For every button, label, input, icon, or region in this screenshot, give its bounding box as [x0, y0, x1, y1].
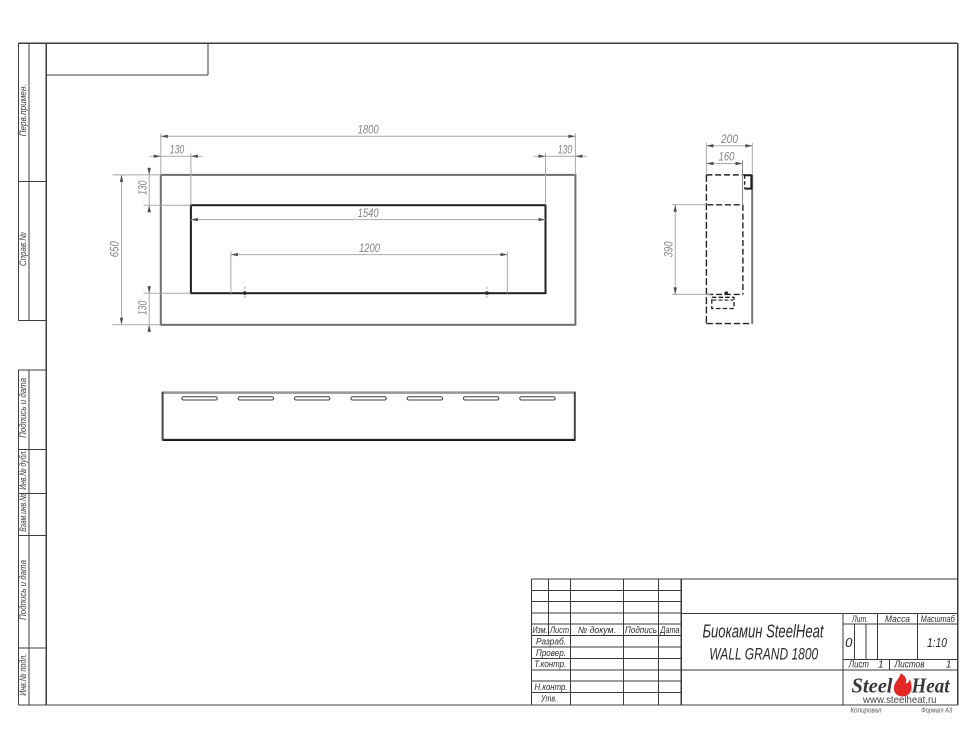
- svg-text:www.steelheat.ru: www.steelheat.ru: [862, 694, 937, 706]
- svg-text:Листов: Листов: [894, 660, 925, 671]
- svg-text:Инв.№ подл.: Инв.№ подл.: [18, 654, 29, 696]
- svg-text:Утв.: Утв.: [540, 693, 557, 704]
- svg-text:1: 1: [878, 660, 884, 671]
- svg-text:WALL GRAND 1800: WALL GRAND 1800: [709, 645, 818, 664]
- svg-text:Н.контр.: Н.контр.: [535, 682, 568, 693]
- svg-text:Провер.: Провер.: [536, 648, 566, 659]
- svg-text:650: 650: [108, 241, 122, 257]
- svg-text:Инв.№ дубл.: Инв.№ дубл.: [18, 450, 29, 490]
- svg-text:130: 130: [135, 180, 149, 195]
- svg-text:Т.контр.: Т.контр.: [534, 659, 566, 670]
- svg-text:1: 1: [946, 660, 952, 671]
- svg-text:Изм.: Изм.: [533, 625, 548, 635]
- svg-text:Лист: Лист: [848, 660, 869, 671]
- svg-text:Формат А3: Формат А3: [921, 705, 953, 714]
- svg-text:Подпись: Подпись: [625, 625, 657, 635]
- svg-text:Масштаб: Масштаб: [921, 614, 956, 624]
- svg-text:№ докум.: № докум.: [578, 625, 616, 635]
- svg-text:1:10: 1:10: [927, 635, 948, 650]
- svg-text:Копировал: Копировал: [851, 705, 883, 714]
- svg-text:Подпись и дата: Подпись и дата: [18, 560, 29, 620]
- svg-text:Лист: Лист: [549, 625, 569, 635]
- svg-text:1540: 1540: [358, 206, 379, 220]
- svg-text:Дата: Дата: [660, 625, 680, 635]
- svg-text:130: 130: [170, 142, 185, 156]
- svg-text:130: 130: [558, 142, 573, 156]
- svg-text:Масса: Масса: [885, 614, 910, 624]
- svg-text:Взам.инв.№: Взам.инв.№: [18, 494, 29, 532]
- svg-text:1800: 1800: [358, 123, 379, 137]
- svg-text:160: 160: [719, 150, 735, 164]
- svg-text:0: 0: [845, 635, 853, 650]
- svg-text:Лит.: Лит.: [851, 614, 868, 624]
- svg-text:Биокамин SteelHeat: Биокамин SteelHeat: [703, 622, 825, 642]
- svg-text:Перв.примен.: Перв.примен.: [18, 84, 29, 136]
- svg-text:1200: 1200: [359, 241, 380, 255]
- svg-text:390: 390: [661, 241, 675, 257]
- svg-text:130: 130: [135, 300, 149, 315]
- svg-text:200: 200: [720, 132, 738, 146]
- svg-text:Подпись и дата: Подпись и дата: [18, 378, 29, 438]
- svg-text:Справ.№: Справ.№: [18, 232, 29, 266]
- svg-text:Разраб.: Разраб.: [536, 637, 566, 648]
